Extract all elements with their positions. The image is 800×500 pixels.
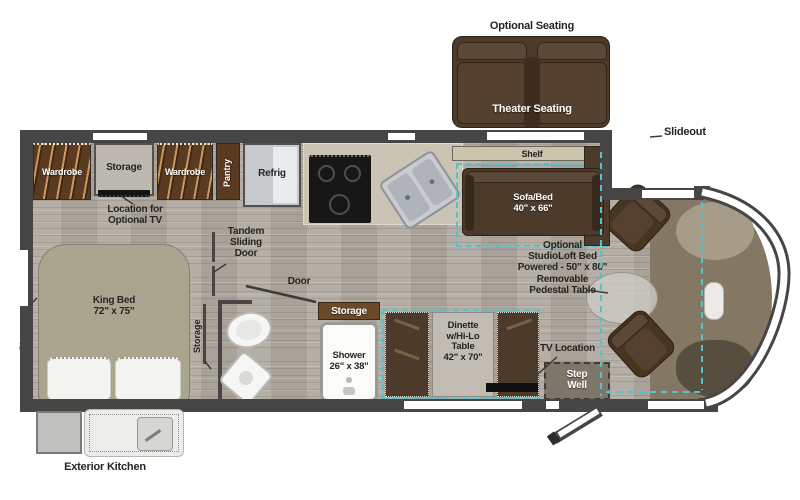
pointer-storage-divider (204, 360, 211, 369)
overlay-lines (0, 0, 800, 500)
pointer-pedestal-table (587, 290, 608, 293)
pointer-tv-location (528, 357, 557, 383)
pointer-tandem-door (214, 264, 226, 272)
pointer-storage-left (29, 298, 37, 306)
windshield-outer (702, 192, 784, 403)
entry-door (559, 411, 598, 435)
bath-door-swing (246, 286, 316, 302)
pointer-optional-tv (121, 196, 133, 204)
entry-door-tip (550, 436, 557, 441)
pointer-slideout (650, 136, 662, 137)
rv-floorplan: Optional Seating Theater Seating Slideou… (0, 0, 800, 500)
